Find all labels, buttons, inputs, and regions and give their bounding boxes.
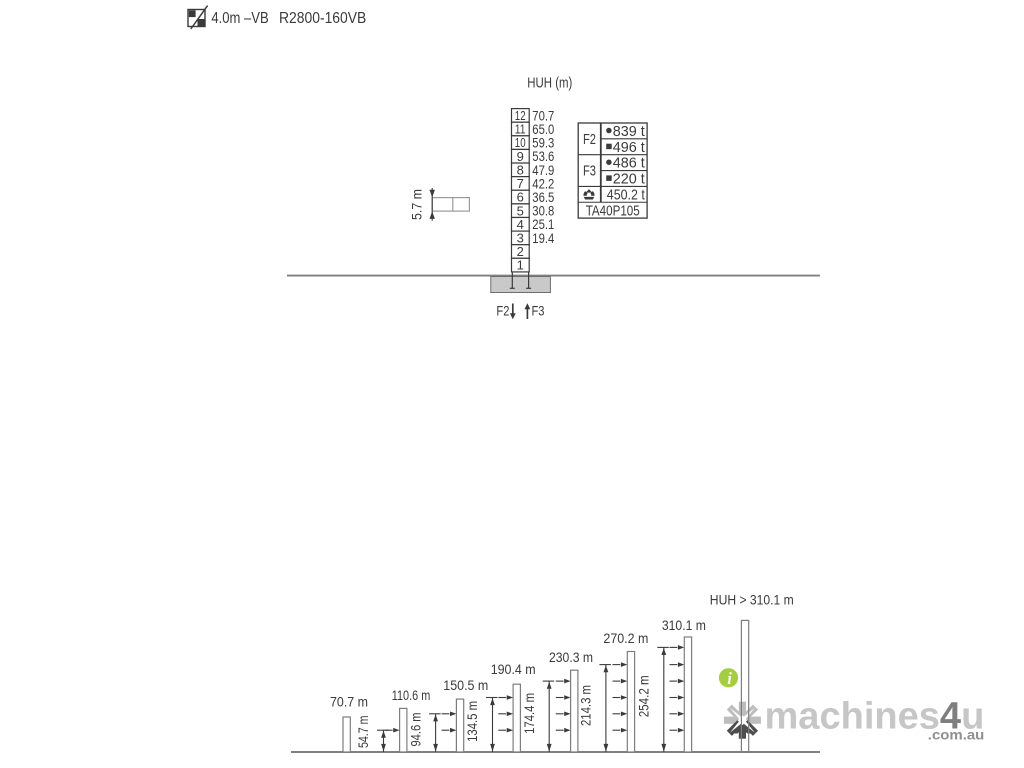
svg-text:94.6 m: 94.6 m bbox=[407, 713, 423, 747]
svg-text:839 t: 839 t bbox=[613, 124, 645, 140]
svg-text:F3: F3 bbox=[583, 164, 596, 180]
svg-text:486 t: 486 t bbox=[613, 156, 645, 172]
svg-text:R2800-160VB: R2800-160VB bbox=[279, 10, 366, 27]
svg-text:496 t: 496 t bbox=[613, 140, 645, 156]
svg-text:110.6 m: 110.6 m bbox=[392, 687, 431, 703]
svg-text:254.2 m: 254.2 m bbox=[636, 675, 652, 717]
svg-text:134.5 m: 134.5 m bbox=[464, 701, 480, 742]
svg-text:4.0m –VB: 4.0m –VB bbox=[211, 10, 268, 27]
svg-text:TA40P105: TA40P105 bbox=[586, 203, 640, 219]
svg-text:HUH (m): HUH (m) bbox=[527, 75, 572, 92]
svg-text:70.7 m: 70.7 m bbox=[330, 694, 368, 710]
svg-text:230.3 m: 230.3 m bbox=[549, 649, 593, 665]
svg-text:.com.au: .com.au bbox=[928, 727, 985, 742]
svg-text:220 t: 220 t bbox=[613, 172, 645, 188]
svg-text:F2: F2 bbox=[496, 304, 509, 319]
svg-text:19.4: 19.4 bbox=[532, 230, 554, 246]
svg-text:150.5 m: 150.5 m bbox=[443, 677, 488, 693]
svg-text:1: 1 bbox=[517, 258, 524, 273]
svg-text:270.2 m: 270.2 m bbox=[603, 630, 648, 646]
svg-text:i: i bbox=[727, 669, 732, 688]
svg-text:HUH > 310.1 m: HUH > 310.1 m bbox=[710, 592, 794, 608]
svg-text:F2: F2 bbox=[583, 132, 596, 148]
svg-text:214.3 m: 214.3 m bbox=[578, 685, 594, 726]
svg-text:190.4 m: 190.4 m bbox=[491, 661, 536, 677]
svg-text:450.2 t: 450.2 t bbox=[607, 187, 645, 203]
svg-text:F3: F3 bbox=[532, 304, 545, 319]
svg-text:5.7 m: 5.7 m bbox=[409, 189, 425, 220]
svg-text:174.4 m: 174.4 m bbox=[521, 693, 537, 734]
svg-text:310.1 m: 310.1 m bbox=[662, 617, 706, 633]
svg-text:54.7 m: 54.7 m bbox=[355, 716, 371, 749]
